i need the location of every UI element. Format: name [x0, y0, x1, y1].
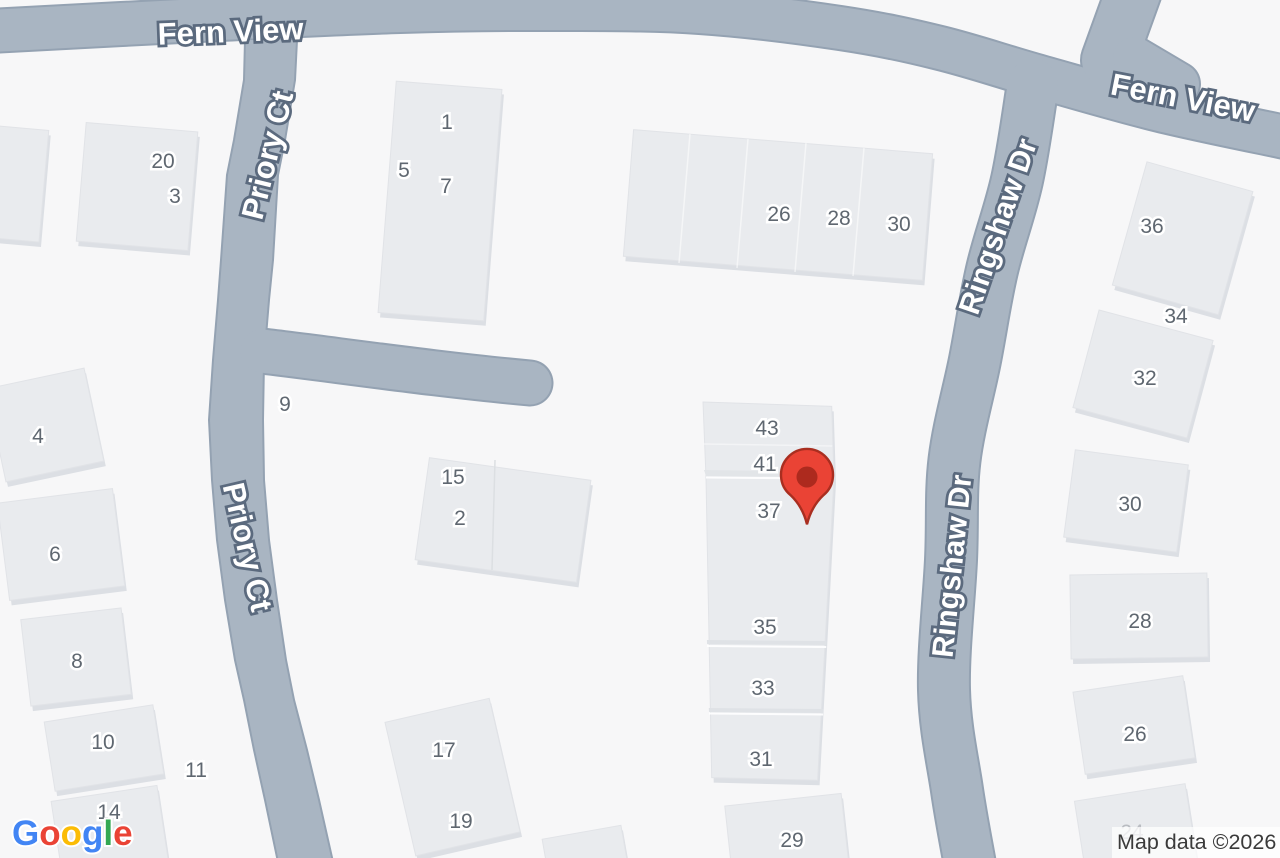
svg-text:31: 31 — [749, 748, 772, 771]
svg-text:33: 33 — [751, 677, 774, 700]
svg-text:34: 34 — [1164, 305, 1188, 328]
svg-text:6: 6 — [49, 543, 61, 566]
svg-text:26: 26 — [767, 203, 790, 226]
svg-text:20: 20 — [151, 150, 174, 173]
svg-text:26: 26 — [1123, 723, 1146, 746]
svg-text:28: 28 — [1128, 610, 1151, 633]
svg-text:28: 28 — [827, 207, 850, 230]
svg-text:2: 2 — [454, 507, 466, 530]
svg-text:15: 15 — [441, 466, 464, 489]
svg-text:37: 37 — [757, 500, 780, 523]
svg-text:30: 30 — [887, 213, 910, 236]
svg-text:Map data ©2026: Map data ©2026 — [1117, 830, 1276, 854]
svg-text:10: 10 — [91, 731, 114, 754]
svg-text:41: 41 — [753, 453, 776, 476]
svg-text:3: 3 — [169, 185, 181, 208]
svg-text:11: 11 — [185, 759, 207, 782]
svg-text:4: 4 — [32, 425, 44, 448]
svg-text:5: 5 — [398, 159, 410, 182]
svg-text:43: 43 — [755, 417, 778, 440]
svg-text:17: 17 — [432, 739, 455, 762]
svg-text:30: 30 — [1118, 493, 1141, 516]
svg-text:35: 35 — [753, 616, 776, 639]
svg-text:8: 8 — [71, 650, 83, 673]
svg-text:29: 29 — [780, 829, 803, 852]
svg-text:36: 36 — [1140, 215, 1163, 238]
svg-text:1: 1 — [441, 111, 453, 134]
svg-text:Google: Google — [12, 814, 133, 853]
svg-text:Fern View: Fern View — [157, 11, 305, 52]
svg-text:7: 7 — [440, 175, 452, 198]
svg-text:19: 19 — [449, 810, 472, 833]
svg-text:32: 32 — [1133, 367, 1156, 390]
svg-text:9: 9 — [279, 393, 291, 416]
